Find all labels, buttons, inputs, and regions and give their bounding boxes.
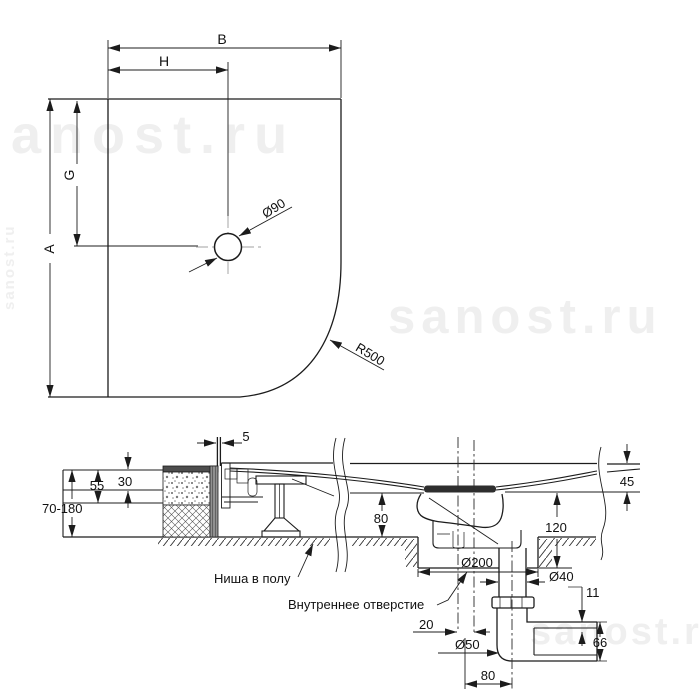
dim-floor-buildup: 70-180	[42, 470, 82, 537]
leg-plate	[256, 476, 306, 484]
edge-strip	[210, 466, 218, 537]
drain-flange	[424, 486, 496, 493]
dim-outlet-diameter: Ø50	[438, 637, 499, 653]
dim-niche-width: Ø200	[418, 555, 538, 572]
ground-hatch	[352, 538, 406, 546]
dim-drain-x-label: H	[159, 53, 169, 69]
tray-apron	[222, 463, 231, 508]
drawing-svg: sanost.ru sanost.ru sanost.ru sanost.ru …	[0, 0, 700, 700]
dim-depth-label: A	[41, 244, 57, 254]
floor-layers	[63, 470, 596, 546]
drain-siphon	[417, 486, 521, 549]
dim-panel-thickness: 5	[197, 429, 250, 444]
dim-niche-height-label: 80	[374, 511, 388, 526]
drain-hole: Ø90	[189, 195, 292, 278]
technical-drawing-shower-tray: sanost.ru sanost.ru sanost.ru sanost.ru …	[0, 0, 700, 700]
dim-screed-layer-label: 55	[90, 478, 104, 493]
dim-tray-edge-height: 45	[620, 444, 634, 511]
label-floor-niche: Ниша в полу	[214, 571, 291, 586]
drain-circle	[215, 234, 242, 261]
tray-corner-arc	[240, 262, 341, 397]
watermark-middle: sanost.ru	[388, 290, 663, 344]
dim-floor-buildup-label: 70-180	[42, 501, 82, 516]
dim-niche-width-label: Ø200	[461, 555, 493, 570]
label-inner-hole: Внутреннее отверстие	[288, 597, 424, 612]
dim-tile-layer: 30	[118, 452, 132, 508]
watermarks: sanost.ru sanost.ru sanost.ru sanost.ru	[0, 105, 700, 653]
pipe-vertical	[499, 548, 526, 597]
dim-drain-y-label: G	[61, 170, 77, 181]
tray-gusset	[292, 479, 334, 496]
watermark-top: sanost.ru	[0, 105, 296, 165]
tray-leg	[256, 476, 306, 537]
dim-width-B: B	[108, 31, 341, 98]
wall-block	[163, 437, 220, 537]
dim-outlet-height-label: 66	[593, 635, 607, 650]
dim-outlet-step-label: 11	[586, 585, 600, 600]
plan-view: B H A G Ø90	[41, 31, 388, 397]
dim-screed-layer: 55	[90, 470, 104, 503]
dim-center-offset: 20	[413, 617, 490, 632]
callouts: Ниша в полу Внутреннее отверстие	[214, 544, 467, 612]
dim-panel-thickness-label: 5	[242, 429, 249, 444]
dim-outlet-diameter-label: Ø50	[455, 637, 480, 652]
watermark-left-edge: sanost.ru	[1, 224, 18, 310]
watermark-bottom: sanost.ru	[530, 611, 700, 653]
siphon-cup	[433, 521, 521, 548]
dim-niche-height: 80	[374, 493, 388, 537]
leg-foot	[264, 518, 299, 531]
dim-tile-layer-label: 30	[118, 474, 132, 489]
dim-pipe-diameter-label: Ø40	[549, 569, 574, 584]
screed-layer-block	[163, 505, 210, 537]
ground-hatch	[552, 538, 596, 546]
corner-radius-label: R500	[353, 340, 387, 369]
dim-pipe-diameter: Ø40	[480, 569, 574, 584]
ground-hatch	[158, 538, 330, 546]
dim-niche-total-depth-label: 120	[545, 520, 567, 535]
dim-outlet-offset-label: 80	[481, 668, 495, 683]
mortar-layer	[163, 472, 210, 505]
upstand-panel	[217, 437, 220, 466]
corner-radius-callout: R500	[330, 340, 388, 370]
dim-center-offset-label: 20	[419, 617, 433, 632]
tray-shell-bottom	[230, 471, 424, 490]
break-lines	[334, 438, 606, 572]
dim-width-label: B	[217, 31, 226, 47]
leg-base	[262, 531, 300, 537]
dim-tray-edge-height-label: 45	[620, 474, 634, 489]
pipe-collar	[492, 597, 534, 608]
